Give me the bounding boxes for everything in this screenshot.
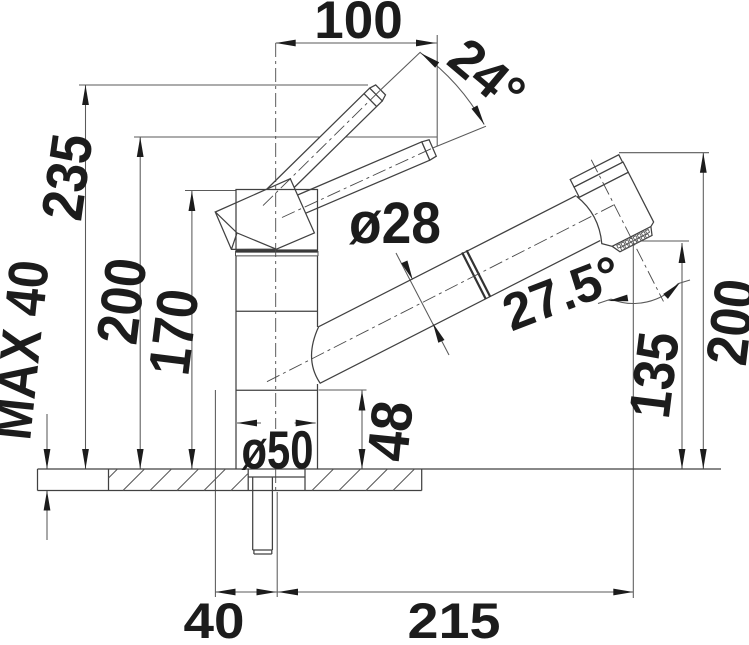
svg-text:48: 48	[355, 398, 426, 464]
svg-text:135: 135	[617, 328, 692, 421]
svg-text:215: 215	[408, 593, 501, 640]
svg-text:40: 40	[184, 593, 245, 640]
svg-text:ø28: ø28	[349, 191, 441, 256]
svg-text:ø50: ø50	[242, 421, 314, 481]
svg-text:170: 170	[136, 285, 211, 378]
svg-text:200: 200	[694, 275, 749, 368]
svg-text:100: 100	[314, 0, 402, 50]
svg-text:235: 235	[29, 130, 105, 224]
